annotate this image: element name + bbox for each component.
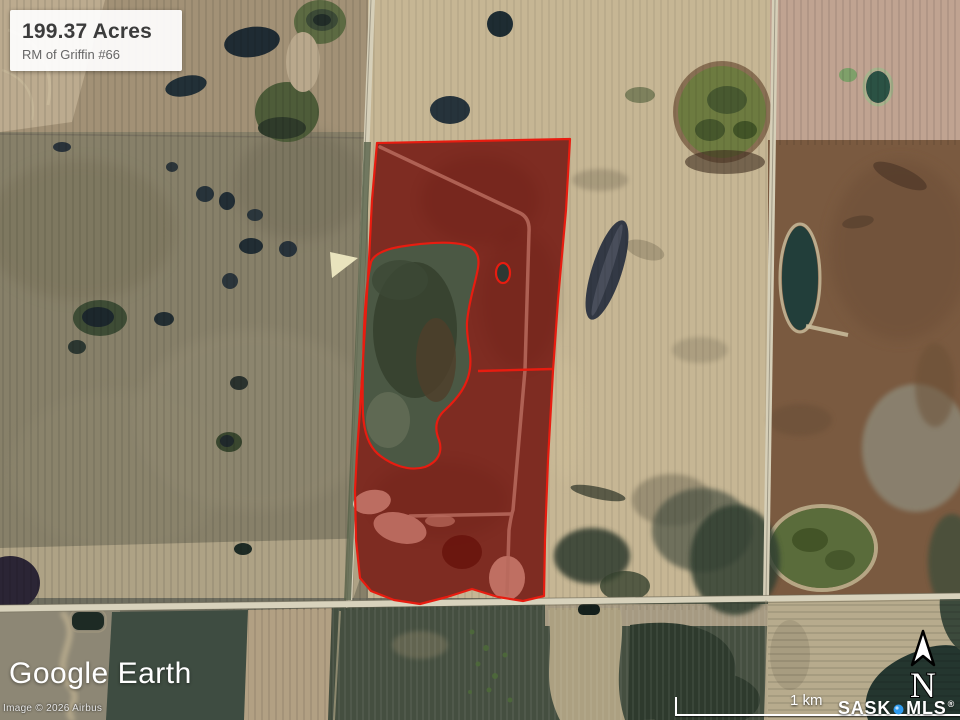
scale-bar-label: 1 km <box>790 692 823 709</box>
watermark-dot-icon <box>893 704 904 715</box>
registered-mark: ® <box>948 699 955 709</box>
parcel-info-card: 199.37 Acres RM of Griffin #66 <box>10 10 182 71</box>
north-arrow-icon: N <box>903 629 943 703</box>
imagery-copyright: Image © 2026 Airbus <box>3 703 102 714</box>
satellite-map-canvas[interactable] <box>0 0 960 720</box>
north-label: N <box>910 665 936 703</box>
google-earth-screenshot: 199.37 Acres RM of Griffin #66 Google Ea… <box>0 0 960 720</box>
watermark-sask-text: SASK <box>838 698 891 719</box>
google-earth-logo: Google Earth <box>9 657 192 691</box>
parcel-area-label: 199.37 Acres <box>22 20 170 43</box>
parcel-municipality-label: RM of Griffin #66 <box>22 47 170 62</box>
